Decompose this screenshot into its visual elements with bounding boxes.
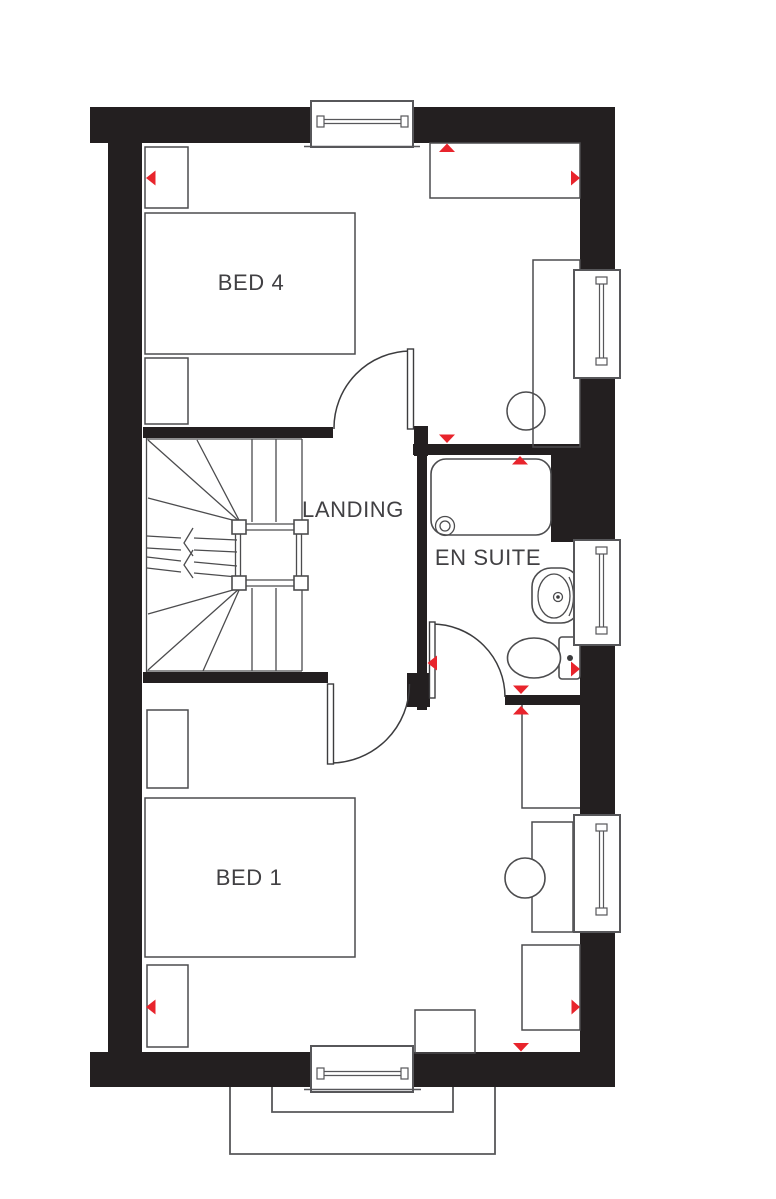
newel-post-top-right (294, 520, 308, 534)
basin-pedestal (532, 568, 580, 623)
marker-down-ensuite-bottom (513, 686, 529, 695)
marker-left-bed4 (146, 171, 156, 186)
window-top (304, 101, 420, 147)
bed4-door-swing-arc (334, 351, 411, 429)
window-right-upper (574, 270, 620, 378)
lower-floor-outline (230, 1087, 495, 1154)
bed4-door-leaf (408, 349, 414, 429)
top-wall-right (410, 107, 615, 143)
window-stop (596, 824, 607, 831)
bottom-wall-left (90, 1052, 313, 1087)
marker-down-ensuite-top (439, 435, 455, 444)
window-stop (596, 358, 607, 365)
marker-right-bed1-chest (572, 1000, 581, 1015)
staircase (147, 438, 309, 672)
room-label-bed1: BED 1 (139, 866, 359, 890)
toilet-flush-button (567, 655, 573, 661)
bed1-door-swing-arc (331, 684, 410, 763)
bedside-table-bed1-top (147, 710, 188, 788)
right-wall-upper (580, 142, 615, 277)
window-stop (317, 1068, 324, 1079)
stair-winders (148, 440, 240, 671)
floor-plan-drawing (0, 0, 776, 1199)
right-wall-mid-lower (580, 640, 615, 830)
room-label-ensuite: EN SUITE (378, 546, 598, 570)
window-stop (596, 277, 607, 284)
stair-break-marks (184, 528, 193, 578)
marker-down-bed1-bottom (513, 1043, 529, 1052)
left-wall (108, 142, 142, 1053)
cupboard-tall (533, 260, 580, 447)
stair-treads (252, 439, 276, 671)
window-bottom (304, 1046, 421, 1092)
room-label-bed4: BED 4 (141, 271, 361, 295)
right-wall-lower (580, 915, 615, 1087)
marker-up-bed1-recess (513, 706, 529, 715)
ensuite-bottom-wall (505, 695, 580, 705)
basin-tap-dot (556, 595, 560, 599)
window-stop (596, 627, 607, 634)
right-wall-duct-block (551, 455, 615, 542)
newel-post-bottom-right (294, 576, 308, 590)
window-stop (401, 1068, 408, 1079)
marker-right-bed4-wardrobe (571, 171, 580, 186)
marker-up-bed4-wardrobe (439, 144, 455, 153)
bedside-table-bed4-bottom (145, 358, 188, 424)
ensuite-left-wall (417, 444, 427, 710)
top-wall-left (90, 107, 313, 143)
ensuite-door-swing-arc (432, 624, 505, 697)
bed1-door-jamb-wall (407, 673, 430, 707)
window-stop (596, 908, 607, 915)
hot-water-cylinder (507, 392, 545, 430)
stair-boundary (147, 438, 303, 672)
stair-bottom-wall (143, 672, 328, 683)
ensuite-top-wall (413, 444, 580, 455)
newel-post-bottom-left (232, 576, 246, 590)
stool (505, 858, 545, 898)
toilet-bowl (508, 638, 561, 678)
window-frame (311, 1046, 413, 1092)
stair-top-wall (143, 427, 333, 438)
room-label-landing: LANDING (243, 498, 463, 522)
bed1-door-leaf (328, 684, 334, 764)
window-stop (401, 116, 408, 127)
floor-plan: BED 4 LANDING EN SUITE BED 1 (0, 0, 776, 1199)
newel-post-top-left (232, 520, 246, 534)
stair-half-landing-treads (147, 536, 237, 577)
ottoman (415, 1010, 475, 1053)
wardrobe-recess-line (522, 705, 580, 808)
window-stop (317, 116, 324, 127)
window-right-lower (574, 815, 620, 932)
porch-outline-outer (230, 1087, 495, 1154)
chest-of-drawers (522, 945, 580, 1030)
